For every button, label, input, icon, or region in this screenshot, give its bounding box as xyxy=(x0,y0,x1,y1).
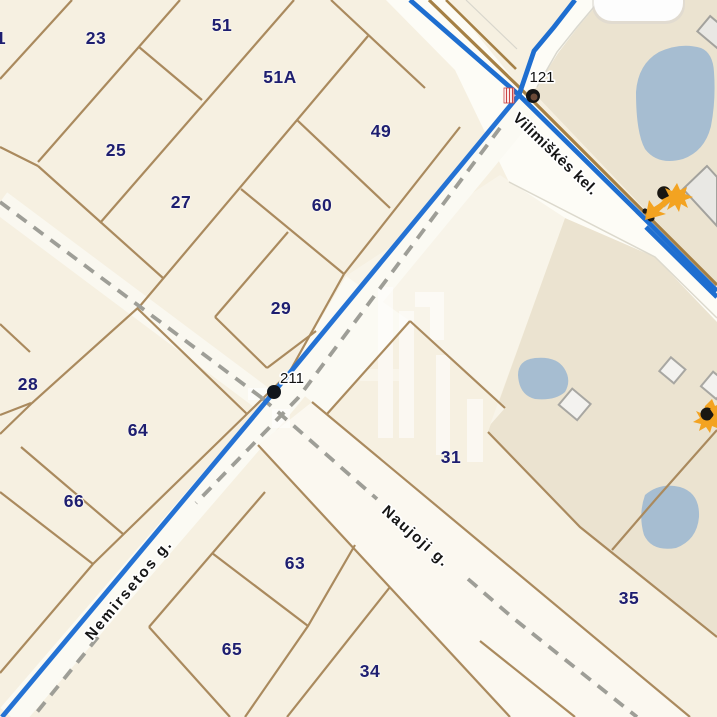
svg-text:51A: 51A xyxy=(263,67,297,87)
svg-text:25: 25 xyxy=(106,140,126,160)
svg-text:34: 34 xyxy=(360,661,380,681)
svg-text:49: 49 xyxy=(371,121,391,141)
svg-text:23: 23 xyxy=(86,28,106,48)
svg-text:64: 64 xyxy=(128,420,148,440)
svg-text:1: 1 xyxy=(0,28,6,48)
svg-text:28: 28 xyxy=(18,374,38,394)
svg-text:27: 27 xyxy=(171,192,191,212)
svg-text:31: 31 xyxy=(441,447,461,467)
svg-text:66: 66 xyxy=(64,491,84,511)
svg-text:63: 63 xyxy=(285,553,305,573)
svg-text:121: 121 xyxy=(529,69,554,86)
svg-text:211: 211 xyxy=(280,370,304,387)
svg-text:35: 35 xyxy=(619,588,639,608)
svg-text:60: 60 xyxy=(312,195,332,215)
svg-text:51: 51 xyxy=(212,15,232,35)
svg-text:65: 65 xyxy=(222,639,242,659)
svg-text:29: 29 xyxy=(271,298,291,318)
